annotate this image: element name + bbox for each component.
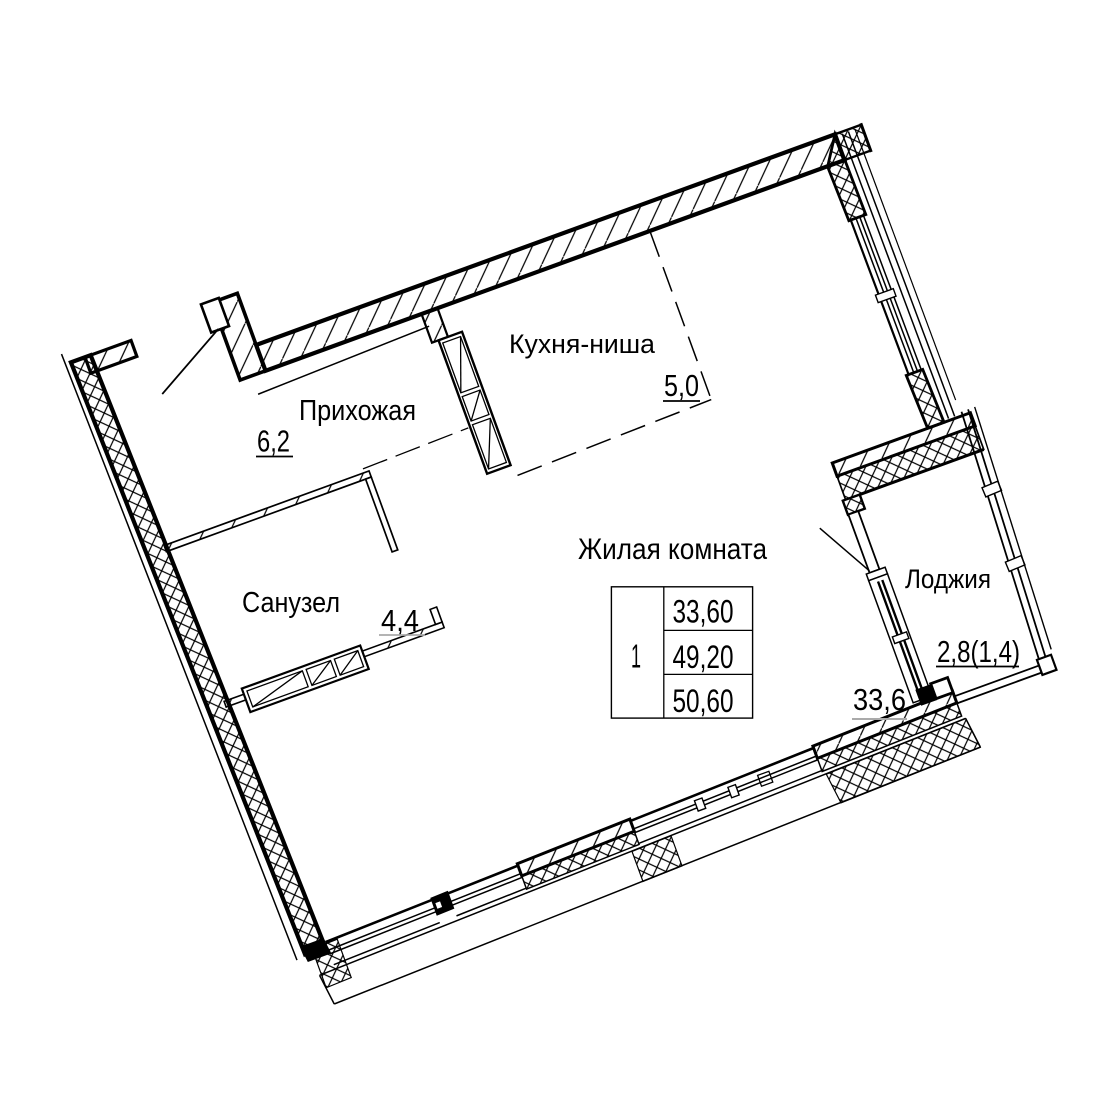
svg-text:Кухня-ниша: Кухня-ниша xyxy=(509,329,656,359)
svg-text:2,8(1,4): 2,8(1,4) xyxy=(937,634,1020,669)
svg-text:5,0: 5,0 xyxy=(664,368,699,403)
svg-text:Санузел: Санузел xyxy=(242,587,340,619)
svg-text:Жилая комната: Жилая комната xyxy=(578,533,767,566)
svg-text:33,60: 33,60 xyxy=(673,594,734,630)
svg-text:6,2: 6,2 xyxy=(257,424,290,459)
svg-text:4,4: 4,4 xyxy=(381,603,419,638)
svg-text:1: 1 xyxy=(631,637,641,674)
svg-text:Прихожая: Прихожая xyxy=(299,395,416,427)
svg-text:33,6: 33,6 xyxy=(853,682,906,717)
svg-text:Лоджия: Лоджия xyxy=(905,564,991,594)
svg-text:49,20: 49,20 xyxy=(673,639,734,675)
svg-text:50,60: 50,60 xyxy=(673,683,734,719)
